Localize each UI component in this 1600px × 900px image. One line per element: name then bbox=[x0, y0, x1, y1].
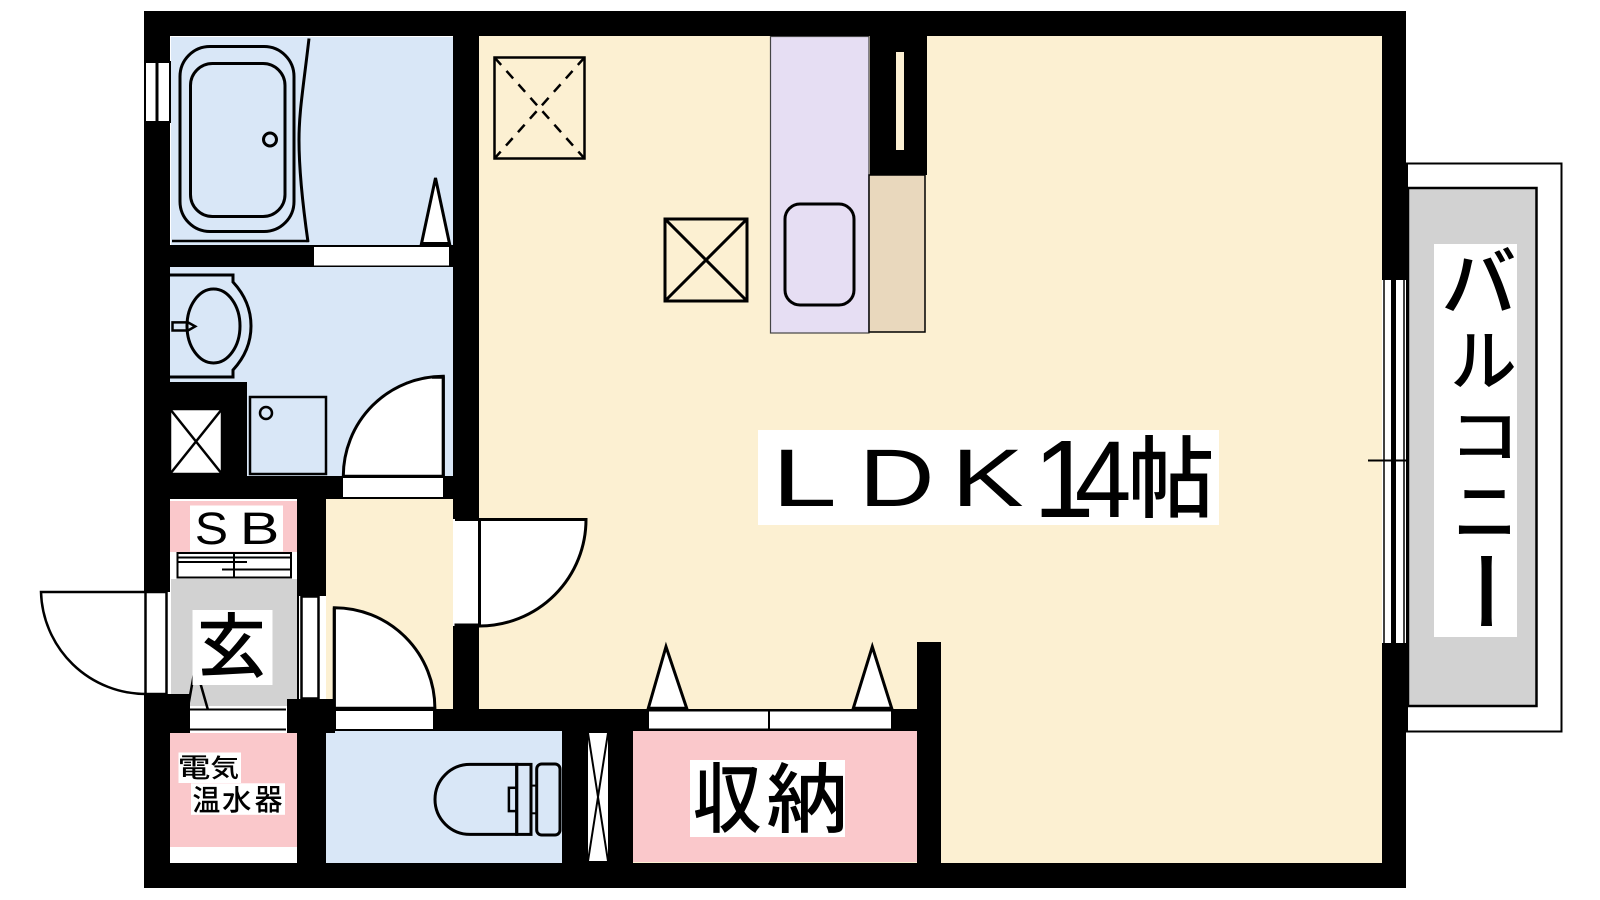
svg-text:B: B bbox=[240, 504, 280, 554]
svg-text:S: S bbox=[195, 504, 228, 554]
svg-text:K: K bbox=[951, 433, 1023, 524]
svg-text:L: L bbox=[772, 432, 837, 524]
svg-text:D: D bbox=[859, 432, 935, 523]
svg-text:4: 4 bbox=[1075, 418, 1132, 540]
